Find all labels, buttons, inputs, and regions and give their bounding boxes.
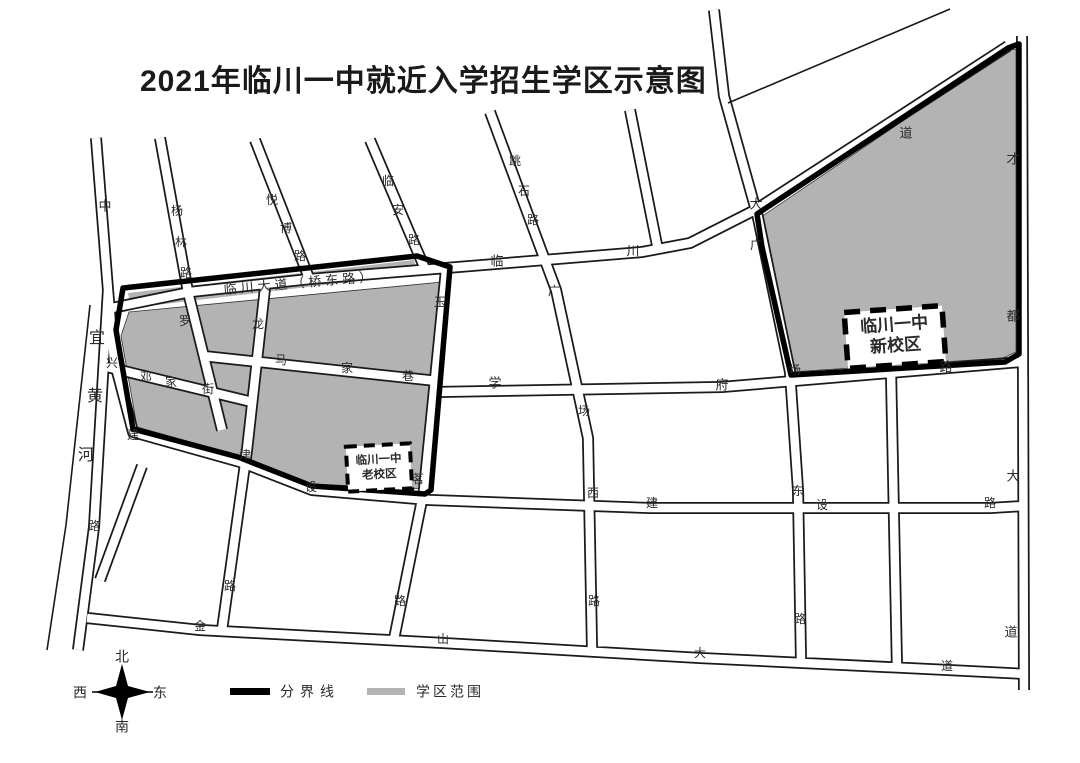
map-label: 马	[275, 353, 287, 367]
map-label: 金	[194, 618, 206, 633]
map-label: 路	[394, 593, 406, 608]
map-label: 路	[180, 265, 192, 280]
map-label: 临	[382, 174, 394, 188]
map-label: 路	[294, 248, 306, 263]
map-label: 场	[578, 404, 590, 418]
map-label: 杨	[171, 203, 183, 218]
map-label: 罗	[179, 314, 191, 328]
map-label: 林	[175, 235, 187, 249]
map-label: 悦	[266, 193, 278, 207]
map-label: 道	[1004, 624, 1017, 639]
legend: 分界线 学区范围	[230, 684, 484, 700]
map-label: 广	[750, 238, 762, 252]
map-label: 西	[587, 486, 599, 500]
map-label: 博	[280, 220, 292, 235]
map-label: 石	[518, 184, 530, 198]
map-label: 巷	[402, 369, 414, 383]
map-label: 龙	[252, 317, 264, 331]
map-label: 广	[548, 284, 560, 298]
map-label: 路	[984, 495, 996, 510]
map-label: 道	[899, 125, 912, 140]
compass-north: 北	[115, 649, 129, 665]
map-label: 才	[1006, 151, 1019, 166]
map-label: 津	[239, 448, 251, 462]
map-label: 路	[588, 593, 600, 608]
legend-district-label: 学区范围	[416, 684, 484, 700]
legend-boundary-label: 分界线	[280, 684, 340, 700]
compass-west: 西	[73, 685, 87, 701]
map-label: 路	[794, 611, 806, 626]
map-label: 设	[816, 498, 828, 512]
map-label: 临	[490, 253, 503, 268]
compass-east: 东	[153, 685, 167, 701]
map-label: 街	[202, 382, 214, 396]
map-label: 兴	[106, 356, 118, 370]
map-label: 家	[341, 360, 353, 375]
compass: 北 南 西 东	[73, 649, 167, 735]
map-label: 府	[715, 377, 728, 392]
map-canvas: 临川一中 新校区 临川一中 老校区 北 南 西 东 分界线 学区范围 中杨林路悦…	[0, 0, 1080, 763]
map-label: 路	[224, 578, 236, 593]
map-label: 茗	[412, 472, 424, 486]
map-label: 大	[1006, 468, 1019, 483]
map-label: 都	[1006, 308, 1019, 323]
compass-south: 南	[115, 719, 129, 735]
map-label: 场	[789, 363, 801, 377]
map-label: 学	[488, 375, 501, 390]
new-campus-subname: 新校区	[869, 333, 921, 357]
map-label: 路	[408, 232, 420, 247]
map-label: 建	[646, 496, 658, 510]
map-label: 大	[749, 196, 762, 211]
map-label: 黄	[87, 387, 103, 405]
boundary-line-swatch	[230, 688, 270, 695]
map-label: 路	[939, 359, 952, 374]
old-campus-box: 临川一中 老校区	[346, 443, 412, 491]
district-area-swatch	[367, 688, 405, 695]
map-label: 中	[98, 198, 111, 213]
map-label: 川	[626, 243, 639, 258]
map-label: 东	[792, 484, 804, 498]
map-label: 大	[694, 646, 706, 660]
compass-star-icon	[95, 664, 150, 720]
map-label: 路	[88, 518, 100, 533]
map-label: 建	[127, 428, 139, 442]
new-campus-box: 临川一中 新校区	[844, 306, 946, 369]
schematic-map-page: 2021年临川一中就近入学招生学区示意图 临川一中 新校区 临川一中	[0, 0, 1080, 763]
map-label: 跳	[509, 154, 521, 168]
map-label: 安	[392, 202, 404, 217]
map-label: 路	[527, 212, 539, 227]
map-label: 家	[165, 374, 177, 389]
map-label: 玉	[434, 295, 446, 309]
map-label: 河	[78, 446, 94, 464]
map-label: 设	[305, 480, 317, 494]
map-label: 邓	[140, 370, 152, 384]
map-label: 道	[941, 659, 953, 673]
map-label: 山	[437, 632, 449, 646]
map-label: 宜	[89, 329, 105, 347]
